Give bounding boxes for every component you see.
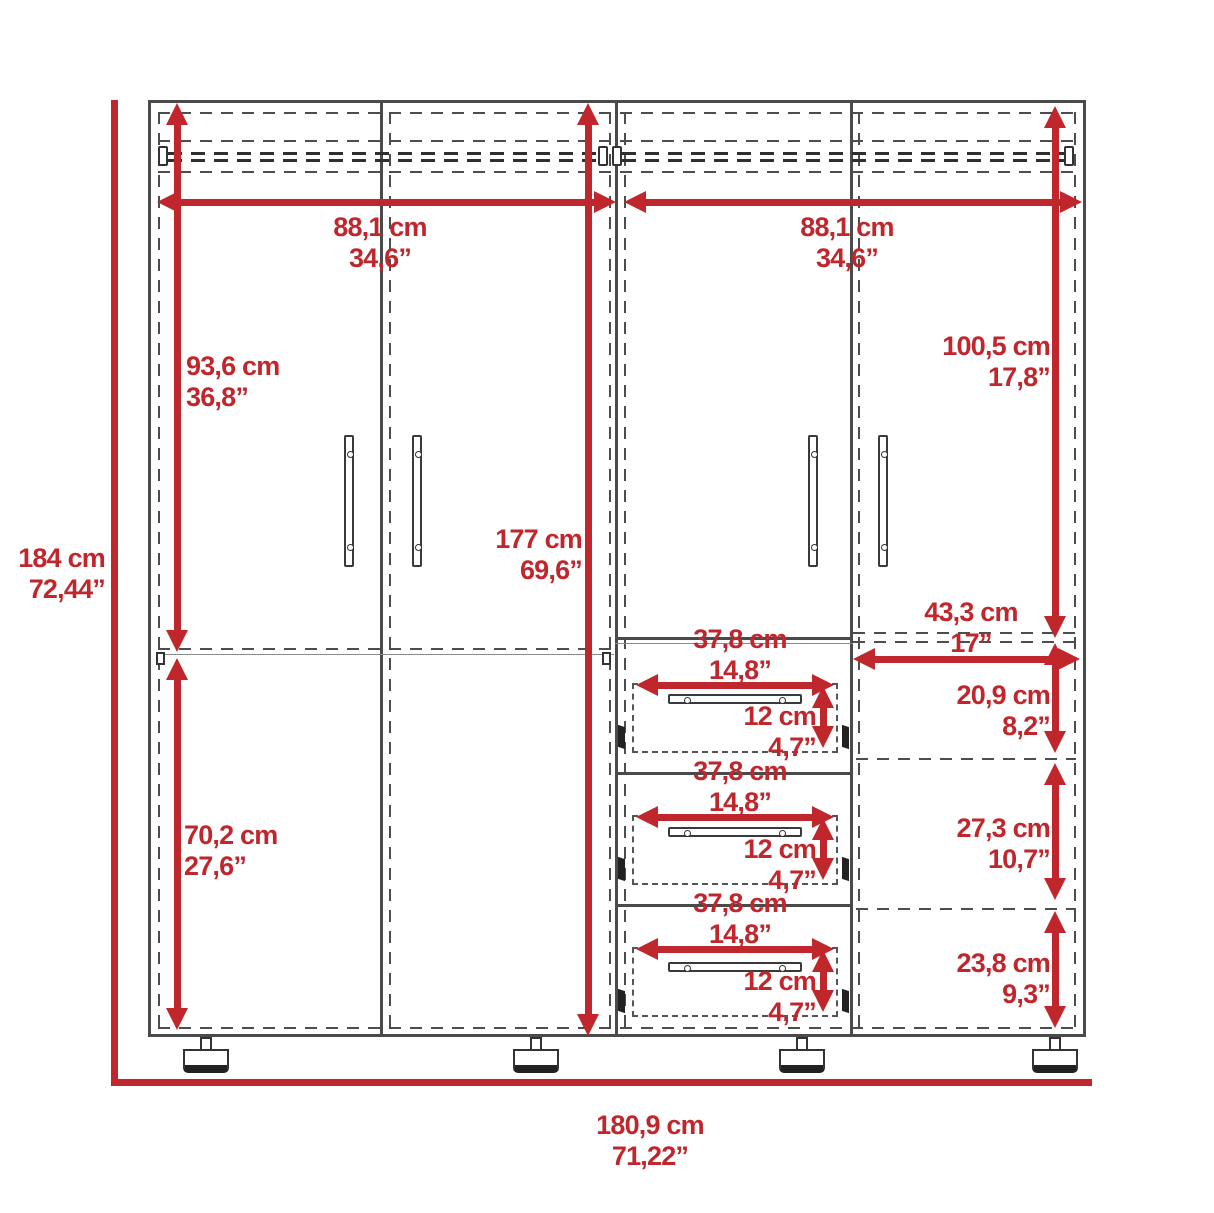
drawer-slide-mark-3r bbox=[842, 989, 849, 1013]
dim-drawer2-height-label: 12 cm4,7” bbox=[700, 834, 816, 896]
door-edge-dash-3 bbox=[624, 112, 626, 1027]
hanging-rod-left-top bbox=[168, 152, 606, 155]
hanging-rod-right-top bbox=[622, 152, 1070, 155]
center-divider bbox=[615, 100, 618, 1037]
dim-right-width-label: 88,1 cm34,6” bbox=[767, 212, 927, 274]
dim-overall-width-label: 180,9 cm71,22” bbox=[550, 1110, 750, 1172]
dim-shelf-space2-arrow bbox=[1052, 781, 1059, 881]
door-handle-3 bbox=[808, 435, 818, 567]
dim-drawer3-width-label: 37,8 cm14,8” bbox=[660, 888, 820, 950]
dim-overall-width-line bbox=[111, 1079, 1092, 1086]
inner-dash-right bbox=[1074, 112, 1076, 1029]
drawer-slide-mark-1r bbox=[842, 725, 849, 749]
door-edge-dash-2 bbox=[609, 112, 611, 1027]
dim-shelf-space1-arrow bbox=[1052, 661, 1059, 733]
right-shelf-dash-mid1 bbox=[856, 758, 1076, 760]
dim-left-width-label: 88,1 cm34,6” bbox=[300, 212, 460, 274]
left-shelf-dash bbox=[158, 648, 614, 650]
top-shelf-dash-lower bbox=[158, 171, 1076, 173]
dimension-diagram: 184 cm72,44” 180,9 cm71,22” 93,6 cm36,8”… bbox=[0, 0, 1214, 1213]
dim-right-shelf-width-label: 43,3 cm17” bbox=[891, 597, 1051, 659]
right-shelf-dash-mid2 bbox=[856, 908, 1076, 910]
arrowhead-right bbox=[594, 191, 616, 213]
rod-bracket-3 bbox=[612, 146, 622, 166]
dim-shelf-space3-label: 23,8 cm9,3” bbox=[906, 948, 1050, 1010]
arrowhead-down bbox=[1044, 878, 1066, 900]
drawer-slide-mark-3l bbox=[618, 989, 625, 1013]
dim-shelf-space2-label: 27,3 cm10,7” bbox=[906, 813, 1050, 875]
hanging-rod-right-bottom bbox=[622, 159, 1070, 162]
arrowhead-down bbox=[577, 1014, 599, 1036]
left-shelf-edge bbox=[158, 654, 614, 655]
hanging-rod-left-bottom bbox=[168, 159, 606, 162]
foot-4 bbox=[1029, 1037, 1081, 1083]
dim-drawer3-height-label: 12 cm4,7” bbox=[700, 966, 816, 1028]
drawer-slide-mark-2l bbox=[618, 857, 625, 881]
foot-1 bbox=[180, 1037, 232, 1083]
rod-bracket-2 bbox=[598, 146, 608, 166]
dim-left-lower-label: 70,2 cm27,6” bbox=[184, 820, 334, 882]
inner-dash-left bbox=[158, 112, 160, 1029]
drawer-slide-mark-2r bbox=[842, 857, 849, 881]
drawer-slide-mark-1l bbox=[618, 725, 625, 749]
arrowhead-down bbox=[166, 630, 188, 652]
dim-overall-height-line bbox=[111, 100, 118, 1086]
dim-drawer1-width-label: 37,8 cm14,8” bbox=[660, 624, 820, 686]
dim-interior-height-arrow bbox=[585, 122, 592, 1018]
dim-right-upper-label: 100,5 cm17,8” bbox=[900, 331, 1050, 393]
foot-3 bbox=[776, 1037, 828, 1083]
rod-bracket-4 bbox=[1064, 146, 1074, 166]
dim-shelf-space1-label: 20,9 cm8,2” bbox=[906, 680, 1050, 742]
door-handle-4 bbox=[878, 435, 888, 567]
dim-left-upper-label: 93,6 cm36,8” bbox=[186, 351, 336, 413]
dim-interior-height-label: 177 cm69,6” bbox=[446, 524, 582, 586]
left-shelf-pin-2 bbox=[602, 652, 611, 665]
dim-drawer2-width-label: 37,8 cm14,8” bbox=[660, 756, 820, 818]
dim-drawer1-height-label: 12 cm4,7” bbox=[700, 701, 816, 763]
rod-bracket-1 bbox=[158, 146, 168, 166]
top-shelf-dash-upper bbox=[158, 140, 1076, 142]
door-handle-2 bbox=[412, 435, 422, 567]
left-shelf-pin-1 bbox=[156, 652, 165, 665]
dim-shelf-space3-arrow bbox=[1052, 929, 1059, 1009]
dim-left-lower-arrow bbox=[174, 676, 181, 1012]
dim-overall-height-label: 184 cm72,44” bbox=[0, 543, 105, 605]
foot-2 bbox=[510, 1037, 562, 1083]
door-handle-1 bbox=[344, 435, 354, 567]
dim-right-width-arrow bbox=[643, 199, 1061, 206]
dim-right-upper-arrow bbox=[1052, 125, 1059, 619]
dim-left-width-arrow bbox=[176, 199, 596, 206]
arrowhead-right bbox=[1060, 191, 1082, 213]
arrowhead-down bbox=[166, 1008, 188, 1030]
